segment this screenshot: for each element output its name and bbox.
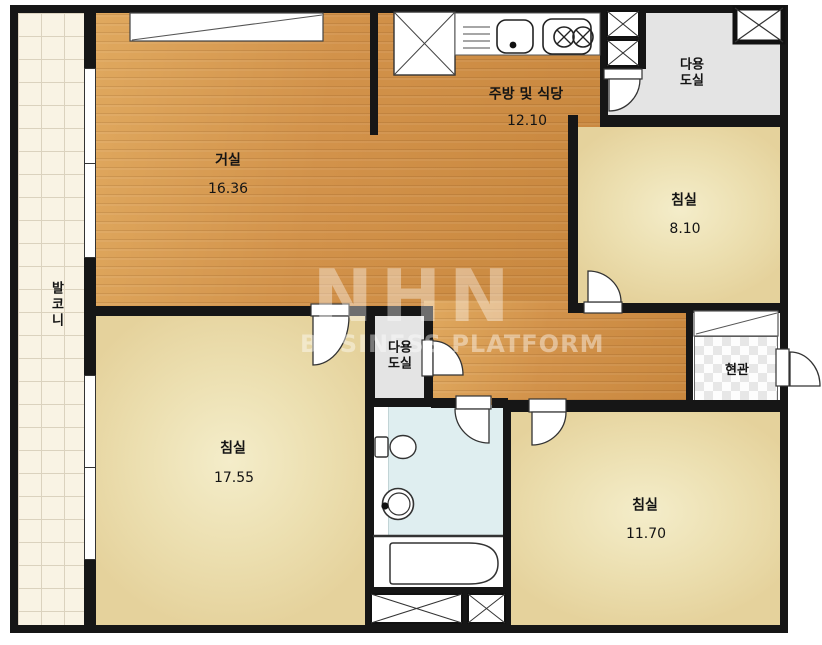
wall-living-bedroom-a — [89, 306, 311, 316]
wall-kitchen-stub — [370, 5, 378, 135]
bedroom-right-floor — [578, 127, 782, 303]
bedroomL-area: 17.55 — [214, 470, 254, 486]
bedroomR-area: 8.10 — [669, 221, 700, 237]
kitchen-area: 12.10 — [507, 113, 547, 129]
front-door — [776, 349, 820, 386]
utility-center-line2: 도실 — [388, 356, 412, 372]
bedroom-bottom-floor — [511, 412, 780, 625]
wall-utilityC-right-a — [424, 306, 433, 342]
utility-top-line2: 도실 — [680, 73, 704, 89]
bedroomB-area: 11.70 — [626, 526, 666, 542]
outer-wall-right-upper — [780, 5, 788, 349]
balcony-wall-seg2 — [84, 258, 96, 375]
bedroomB-label: 침실 — [632, 498, 658, 515]
bedroomR-label: 침실 — [671, 193, 697, 210]
bathroom-wet-zone — [388, 405, 503, 536]
wall-bedroomL-right — [365, 306, 374, 625]
balcony-wall-seg3 — [84, 560, 96, 625]
utility-top-line1: 다용 — [680, 57, 704, 73]
wall-bath-bottom-block — [365, 587, 511, 633]
living-kitchen-floor — [89, 5, 608, 318]
wall-bedroomR-bottom-a — [568, 303, 585, 313]
balcony-wall-seg1 — [84, 5, 96, 68]
outer-wall-left — [10, 5, 18, 633]
wall-kitchen-column — [600, 5, 646, 69]
living-room-label: 거실 — [215, 153, 241, 170]
wall-kitchen-utility — [600, 69, 608, 117]
bedroom-window-pane1 — [84, 375, 96, 468]
wall-entrance-left — [686, 305, 693, 412]
wall-utility-bedroom — [600, 115, 788, 127]
utility-center-line1: 다용 — [388, 340, 412, 356]
utility-center-label: 다용 도실 — [388, 340, 412, 371]
wall-utilityC-bottom — [366, 398, 433, 407]
entrance-cabinet-zone — [694, 311, 778, 337]
wall-entrance-bottom — [686, 403, 788, 412]
living-window-pane1 — [84, 68, 96, 164]
wall-bedroomR-left — [568, 115, 578, 313]
entrance-label: 현관 — [725, 363, 749, 379]
bedroomL-label: 침실 — [220, 441, 246, 458]
hallway-floor — [424, 300, 693, 412]
wall-living-bedroom-b — [348, 306, 433, 316]
living-room-area: 16.36 — [208, 181, 248, 197]
balcony-label: 발코니 — [47, 281, 66, 329]
kitchen-label: 주방 및 식당 — [489, 87, 563, 104]
floor-plan: NHN BUSINESS PLATFORM 거실 16.36 주방 및 식당 1… — [0, 0, 822, 645]
utility-top-label: 다용 도실 — [680, 57, 704, 88]
wall-bath-top-a — [431, 398, 457, 408]
outer-wall-top — [10, 5, 788, 13]
outer-wall-right-lower — [780, 386, 788, 633]
wall-bedroomR-bottom-b — [622, 303, 788, 313]
bedroom-window-pane2 — [84, 467, 96, 560]
living-window-pane2 — [84, 163, 96, 258]
